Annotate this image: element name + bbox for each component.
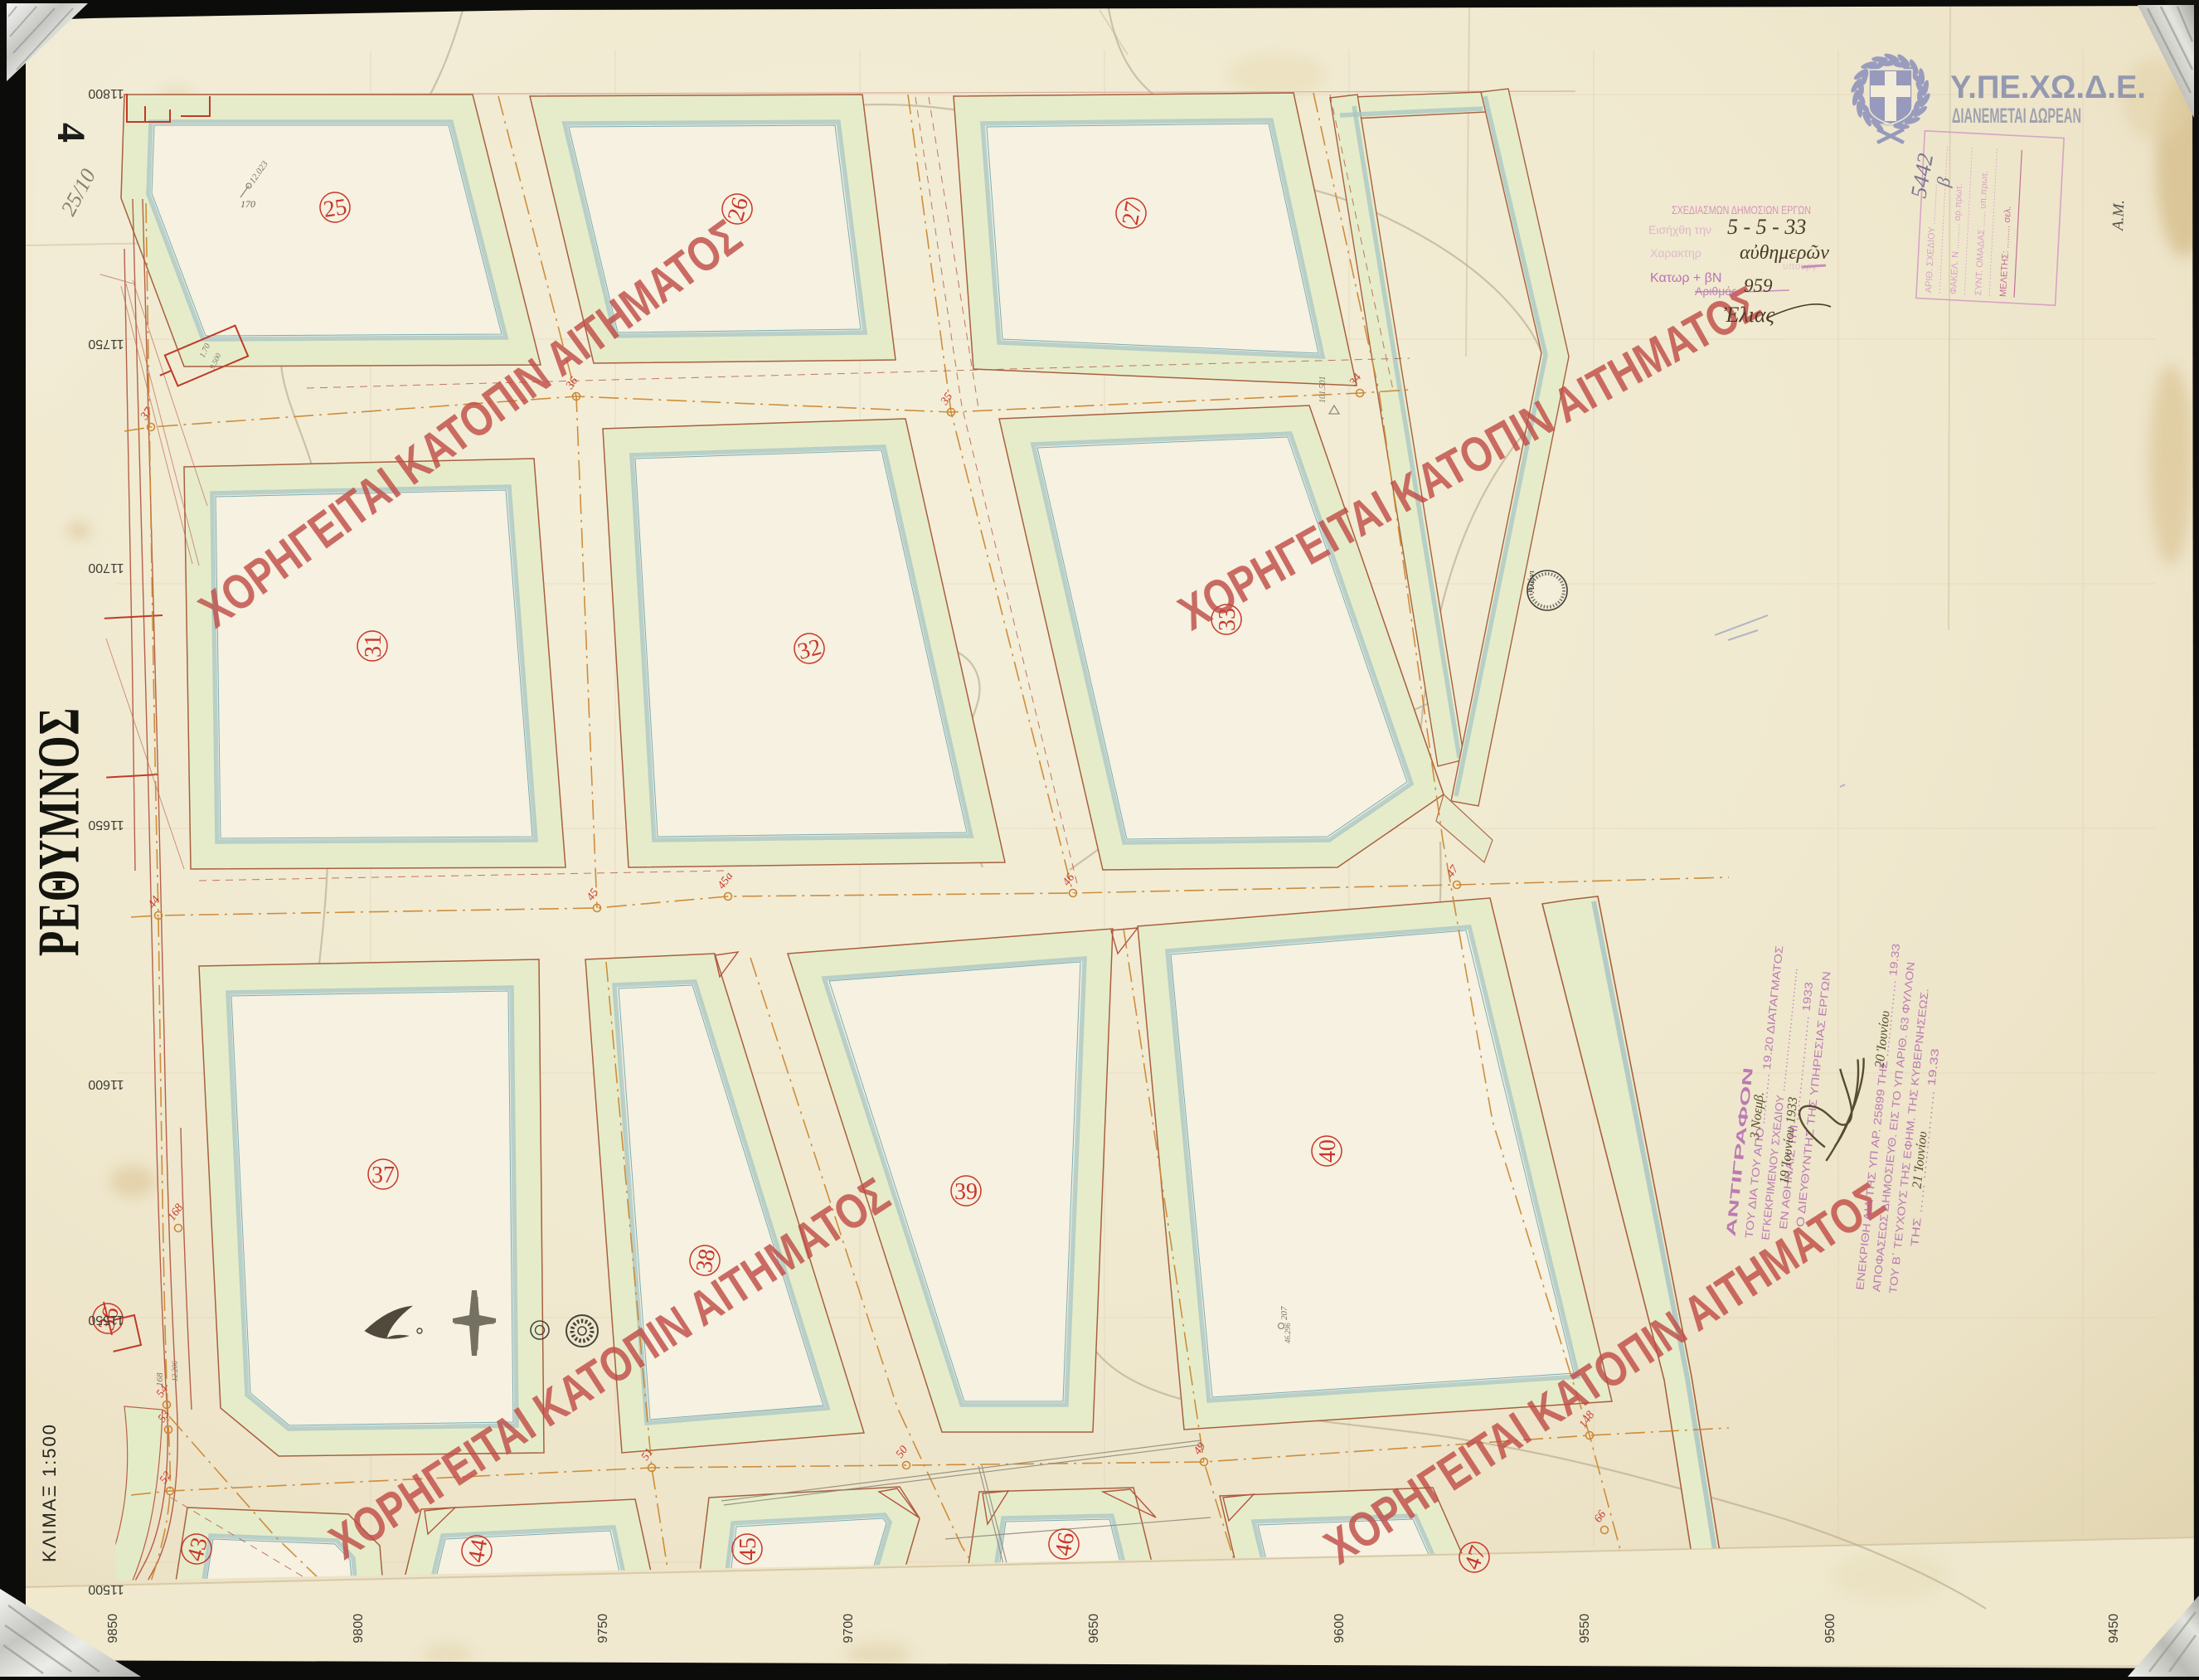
svg-text:11800: 11800 — [88, 86, 124, 100]
svg-text:4: 4 — [49, 123, 93, 143]
svg-text:9500: 9500 — [1823, 1614, 1837, 1644]
svg-text:40: 40 — [1315, 1139, 1341, 1163]
svg-text:9800: 9800 — [352, 1614, 366, 1644]
svg-text:9750: 9750 — [596, 1614, 610, 1644]
svg-text:ΚΛΙΜΑΞ 1:500: ΚΛΙΜΑΞ 1:500 — [39, 1423, 60, 1562]
svg-text:5 - 5 - 33: 5 - 5 - 33 — [1727, 215, 1806, 239]
svg-text:ΔΙΑΝΕΜΕΤΑΙ ΔΩΡΕΑΝ: ΔΙΑΝΕΜΕΤΑΙ ΔΩΡΕΑΝ — [1952, 104, 2081, 128]
svg-text:44: 44 — [464, 1537, 493, 1565]
svg-text:170: 170 — [240, 198, 255, 210]
svg-text:39: 39 — [954, 1179, 978, 1205]
svg-text:Ἀλώνι: Ἀλώνι — [1527, 571, 1536, 594]
svg-text:11500: 11500 — [88, 1582, 124, 1596]
svg-text:Υ.ΠΕ.ΧΩ.Δ.Ε.: Υ.ΠΕ.ΧΩ.Δ.Ε. — [1950, 70, 2146, 105]
svg-text:Χαρακτηρ: Χαρακτηρ — [1650, 246, 1701, 260]
svg-text:45: 45 — [735, 1537, 761, 1561]
svg-text:11600: 11600 — [88, 1077, 124, 1091]
svg-text:11650: 11650 — [88, 818, 124, 832]
svg-text:959: 959 — [1744, 275, 1773, 296]
svg-text:11700: 11700 — [88, 561, 124, 575]
svg-text:46: 46 — [1051, 1531, 1080, 1558]
svg-text:9850: 9850 — [106, 1614, 120, 1644]
svg-text:207: 207 — [1279, 1306, 1289, 1320]
svg-text:37: 37 — [371, 1163, 395, 1188]
svg-text:31: 31 — [361, 634, 386, 658]
svg-text:9700: 9700 — [842, 1614, 856, 1644]
svg-text:168: 168 — [155, 1372, 165, 1386]
svg-text:9600: 9600 — [1333, 1614, 1347, 1644]
svg-text:A.M.: A.M. — [2109, 200, 2128, 233]
svg-text:Κατωρ + βΝ: Κατωρ + βΝ — [1650, 271, 1721, 285]
svg-text:Αριθμός: Αριθμός — [1695, 284, 1737, 298]
svg-text:Ἐλιας: Ἐλιας — [1724, 303, 1775, 327]
svg-text:9550: 9550 — [1578, 1614, 1592, 1644]
svg-text:11750: 11750 — [88, 337, 124, 351]
svg-text:25: 25 — [322, 194, 348, 223]
svg-text:12.206: 12.206 — [171, 1361, 179, 1381]
svg-text:101.501: 101.501 — [1318, 376, 1328, 404]
svg-text:27: 27 — [1118, 200, 1147, 227]
svg-text:11550: 11550 — [88, 1313, 124, 1327]
svg-text:ΡΕΘΥΜΝΟΣ: ΡΕΘΥΜΝΟΣ — [27, 707, 92, 956]
svg-text:46.296: 46.296 — [1284, 1323, 1292, 1343]
svg-text:Εισήχθη την: Εισήχθη την — [1648, 223, 1711, 236]
svg-text:αὐθημερῶν: αὐθημερῶν — [1740, 242, 1829, 264]
svg-text:9450: 9450 — [2107, 1614, 2121, 1644]
svg-text:9650: 9650 — [1087, 1614, 1101, 1644]
